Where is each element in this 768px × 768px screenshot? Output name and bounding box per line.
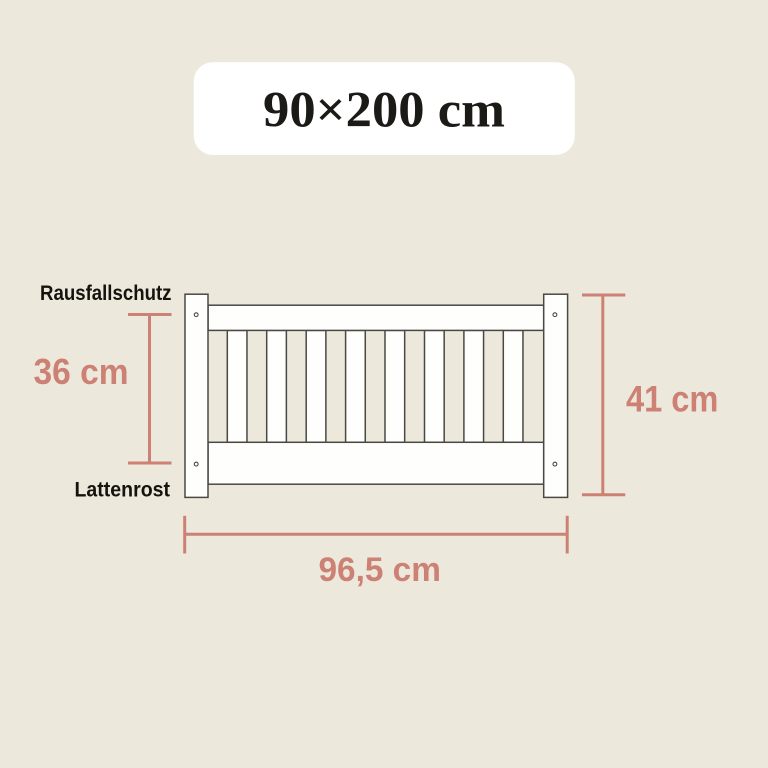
- svg-text:Lattenrost: Lattenrost: [75, 478, 171, 502]
- svg-text:41 cm: 41 cm: [626, 379, 719, 420]
- svg-text:Rausfallschutz: Rausfallschutz: [40, 281, 172, 305]
- svg-text:96,5 cm: 96,5 cm: [318, 551, 441, 589]
- svg-text:36 cm: 36 cm: [34, 351, 129, 392]
- svg-text:90×200 cm: 90×200 cm: [263, 83, 505, 139]
